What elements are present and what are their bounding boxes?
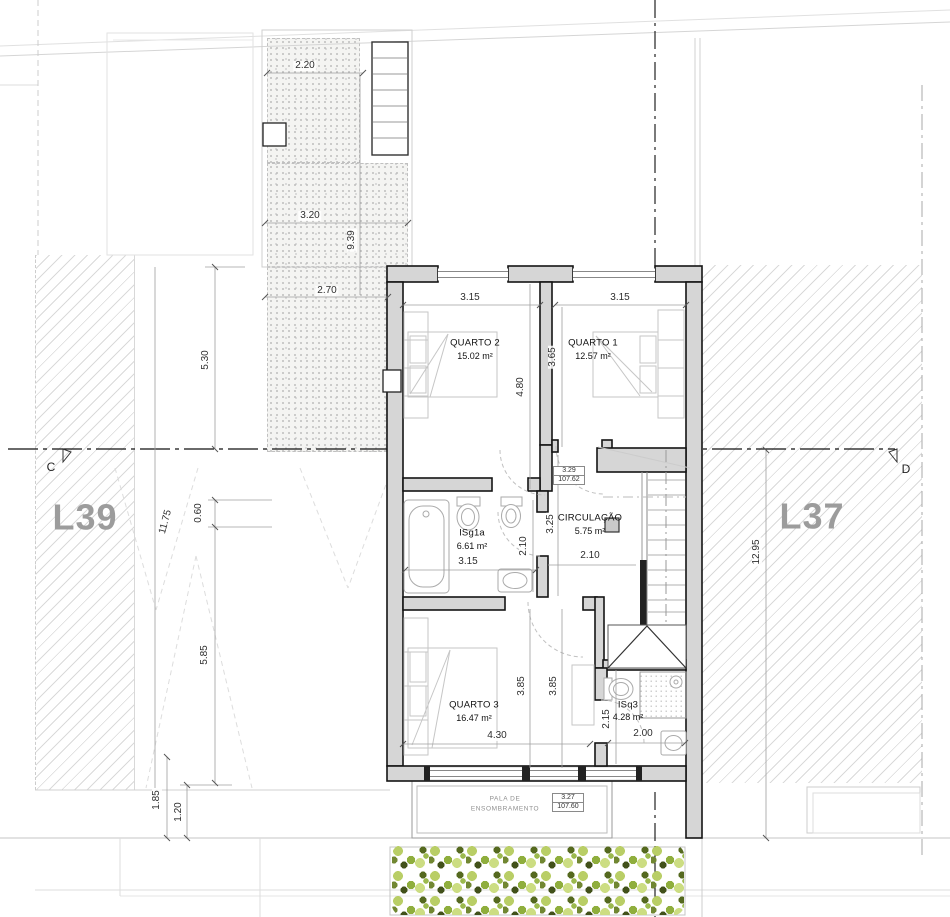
dim-circ-width: 2.10 [578,551,601,561]
canopy-label-line2: ENSOMBRAMENTO [471,805,539,812]
room-area-quarto1: 12.57 m² [575,351,611,361]
room-area-quarto3: 16.47 m² [456,713,492,723]
floor-plan-drawing [0,0,950,917]
tree-projection-lines [115,468,392,788]
level-value-upper: 3.29 [554,467,584,476]
dim-left-060: 0.60 [194,501,204,524]
section-flag-c [63,449,71,462]
dim-patio-width2: 3.20 [298,211,321,221]
dim-left-120: 1.20 [174,800,184,823]
section-flag-d [889,449,897,462]
dim-patio-height: 9.39 [347,228,357,251]
dim-quarto3-height-b: 3.85 [549,674,559,697]
room-label-quarto1: QUARTO 1 [568,339,618,350]
room-area-quarto2: 15.02 m² [457,351,493,361]
dim-right-1295: 12.95 [752,537,762,566]
hedge-vegetation [392,845,684,915]
dim-patio-width3: 2.70 [315,286,338,296]
dim-quarto1-width: 3.15 [608,293,631,303]
dim-isq3-height: 2.15 [602,707,612,730]
dim-isq3-width: 2.00 [631,729,654,739]
level-elevation-lower: 107.60 [553,803,583,811]
dim-patio-width: 2.20 [293,61,316,71]
room-label-isg1a: ISg1a [459,529,485,540]
level-elevation-upper: 107.62 [554,476,584,484]
room-label-quarto3: QUARTO 3 [449,701,499,712]
lot-label-left: L39 [52,496,117,537]
dim-left-185: 1.85 [152,788,162,811]
lot-label-right: L37 [779,495,844,536]
room-label-quarto2: QUARTO 2 [450,339,500,350]
level-value-lower: 3.27 [553,794,583,803]
room-area-isq3: 4.28 m² [613,712,644,722]
dim-quarto2-width: 3.15 [458,293,481,303]
dim-bath-width: 3.15 [456,557,479,567]
dim-quarto1-height: 3.65 [548,345,558,368]
stair-void [608,625,686,668]
pergola-ladder [263,42,408,155]
dim-quarto3-height-a: 3.85 [517,674,527,697]
dim-quarto3-width: 4.30 [485,731,508,741]
dim-quarto2-height: 4.80 [516,375,526,398]
dim-left-585: 5.85 [200,643,210,666]
room-area-circulacao: 5.75 m² [575,526,606,536]
room-label-circulacao: CIRCULAÇÃO [558,514,622,525]
level-marker-upper: 3.29 107.62 [553,466,585,485]
site-plan: L39 L37 C D QUARTO 2 15.02 m² QUARTO 1 1… [0,0,950,917]
room-area-isg1a: 6.61 m² [457,541,488,551]
dim-bath-height: 2.10 [519,534,529,557]
dim-left-530: 5.30 [201,348,211,371]
level-marker-lower: 3.27 107.60 [552,793,584,812]
room-label-isq3: ISq3 [618,701,638,712]
left-wall-window [383,370,401,392]
section-marker-c: C [47,461,56,475]
section-marker-d: D [902,463,911,477]
dim-circ-height: 3.25 [546,512,556,535]
canopy-label-line1: PALA DE [490,795,521,802]
